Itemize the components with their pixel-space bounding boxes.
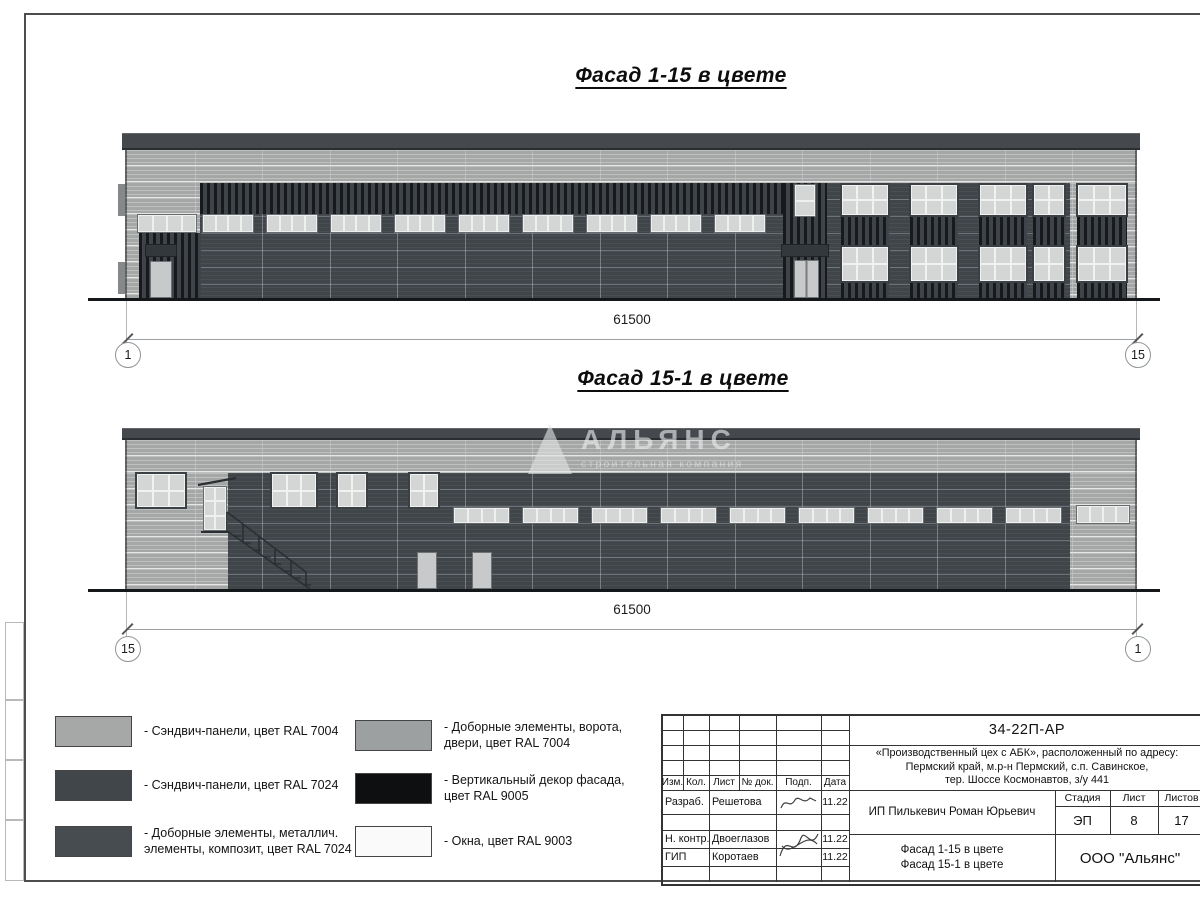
window-pane (1104, 507, 1115, 522)
entrance-door (150, 261, 172, 298)
tb-sheet-value: 8 (1110, 806, 1158, 834)
tb-stage-value: ЭП (1055, 806, 1110, 834)
window-pane (943, 186, 956, 199)
window-pane (154, 216, 167, 231)
window-pane (1117, 507, 1128, 522)
window-pane (1035, 201, 1048, 214)
window-pane (345, 216, 356, 231)
tb-sheets-label: Листов (1158, 790, 1200, 806)
tb-stage-label: Стадия (1055, 790, 1110, 806)
window-pane (927, 265, 940, 280)
window-pane (154, 475, 168, 490)
window-pane (858, 248, 871, 263)
tb-header-podp: Подп. (776, 775, 821, 790)
tb-project-line: тер. Шоссе Космонавтов, з/у 441 (945, 774, 1109, 788)
legend-label: - Доборные элементы, ворота, двери, цвет… (444, 720, 622, 751)
office-window-upper (840, 183, 890, 217)
window-pane (268, 216, 279, 231)
window-pane (1050, 265, 1063, 280)
window-pane (716, 216, 727, 231)
legend-label: - Вертикальный декор фасада, цвет RAL 90… (444, 773, 625, 804)
window-pane (183, 216, 196, 231)
tb-date: 11.22 (821, 848, 849, 866)
window-pane (469, 509, 481, 522)
window-pane (552, 509, 564, 522)
panel-joint (1072, 150, 1073, 298)
frame-border-top (24, 13, 1200, 15)
window-pane (138, 492, 152, 507)
window-pane (370, 216, 381, 231)
window-pane (1035, 265, 1048, 280)
ribbon-window (330, 214, 382, 233)
panel-joint (330, 440, 331, 590)
ribbon-window (798, 507, 855, 524)
window-pane (524, 509, 536, 522)
window-pane (425, 475, 437, 490)
frame-border-left (24, 13, 26, 882)
window-pane (927, 201, 940, 214)
window-pane (421, 216, 432, 231)
tb-sheets-value: 17 (1158, 806, 1200, 834)
signature-stroke (781, 798, 816, 808)
service-door (417, 552, 437, 589)
window-pane (858, 265, 871, 280)
window-pane (869, 509, 881, 522)
window-pane (927, 186, 940, 199)
tb-name-korotaev: Коротаев (709, 848, 776, 866)
window-pane (353, 475, 365, 490)
dimension-label: 61500 (613, 312, 651, 327)
window-pane (1079, 201, 1093, 214)
window-pane (858, 186, 871, 199)
window-pane (549, 216, 560, 231)
sandwich-panel-light-end-bay (1070, 473, 1137, 590)
window-pane (425, 492, 437, 507)
extension-line (1136, 592, 1137, 640)
window-pane (979, 509, 991, 522)
window-pane (339, 475, 351, 490)
dimension-line (127, 339, 1137, 340)
window-pane (883, 509, 895, 522)
legend-swatch-ral9003 (355, 826, 432, 857)
tb-sheet-label: Лист (1110, 790, 1158, 806)
legend-swatch-ral9005 (355, 773, 432, 804)
window-pane (626, 216, 637, 231)
window-pane (759, 509, 771, 522)
window-pane (306, 216, 317, 231)
window-pane (1012, 248, 1025, 263)
window-pane (332, 216, 343, 231)
window-pane (1095, 201, 1109, 214)
stair-steps (233, 536, 311, 585)
window-pane (1079, 265, 1093, 280)
tb-project-line: Пермский край, м.р-н Пермский, с.п. Сави… (906, 761, 1149, 775)
window-pane (601, 216, 612, 231)
window-pane (814, 509, 826, 522)
window-pane (588, 216, 599, 231)
window-pane (1111, 201, 1125, 214)
ribbon-window (522, 214, 574, 233)
wall-fin (118, 184, 125, 216)
tb-project-line: «Производственный цех с АБК», расположен… (876, 747, 1179, 761)
building-edge (125, 440, 127, 590)
window-pane (339, 492, 351, 507)
facade-bottom-title: Фасад 15-1 в цвете (577, 367, 788, 391)
entrance-door-double (794, 260, 819, 298)
window-pane (524, 216, 535, 231)
window-pane (293, 216, 304, 231)
panel-joint (1072, 440, 1073, 590)
window-pane (996, 248, 1009, 263)
service-door (472, 552, 492, 589)
window-pane (754, 216, 765, 231)
window-pane (1012, 265, 1025, 280)
signature-reshetova (779, 793, 819, 813)
facade-top-title: Фасад 1-15 в цвете (575, 64, 786, 88)
window-pane (652, 216, 663, 231)
window-pane (538, 509, 550, 522)
sandwich-panel-light-band (125, 440, 1137, 473)
vertical-decor-band (1033, 217, 1065, 245)
window-pane (496, 509, 508, 522)
axis-marker-15: 15 (115, 636, 141, 662)
ribbon-window (660, 507, 717, 524)
drawing-sheet: Фасад 1-15 в цвете Фасад 15-1 в цвете АЛ… (0, 0, 1200, 900)
ribbon-window (1076, 505, 1130, 524)
window-pane (858, 201, 871, 214)
window-pane (138, 475, 152, 490)
building-edge (125, 150, 127, 298)
window-pane (912, 186, 925, 199)
window-pane (874, 186, 887, 199)
ribbon-window (137, 214, 197, 233)
window-pane (943, 265, 956, 280)
window-pane (676, 509, 688, 522)
legend-swatch-ral7024 (55, 770, 132, 801)
window-pane (217, 216, 228, 231)
ribbon-window (714, 214, 766, 233)
vertical-decor-band (841, 217, 889, 245)
window-pane (434, 216, 445, 231)
window-pane (981, 186, 994, 199)
stair-stringer (227, 531, 310, 589)
window-pane (981, 265, 994, 280)
window-pane (460, 216, 471, 231)
tb-company: ООО "Альянс" (1055, 834, 1200, 882)
tb-name-dvoeglazov: Двоеглазов (709, 830, 776, 848)
window-pane (483, 509, 495, 522)
vertical-decor-band (200, 183, 783, 214)
legend-item: - Доборные элементы, металлич. элементы,… (55, 826, 352, 857)
window-pane (170, 492, 184, 507)
window-pane (772, 509, 784, 522)
building-edge (1135, 440, 1137, 590)
fire-escape-stairs (196, 472, 322, 592)
window-pane (473, 216, 484, 231)
vertical-decor-band (1033, 283, 1065, 298)
tb-header-ndok: № док. (739, 775, 776, 790)
window-pane (703, 509, 715, 522)
tb-project-description: «Производственный цех с АБК», расположен… (849, 745, 1200, 790)
window-pane (634, 509, 646, 522)
window-pane (455, 509, 467, 522)
office-window-lower (1076, 245, 1128, 283)
window-pane (996, 201, 1009, 214)
window-pane (910, 509, 922, 522)
tb-header-izm: Изм. (662, 775, 683, 790)
tb-sheet-title: Фасад 1-15 в цвете Фасад 15-1 в цвете (849, 834, 1055, 882)
vertical-decor-band (979, 283, 1027, 298)
window-pane (996, 265, 1009, 280)
dimension-label: 61500 (613, 602, 651, 617)
office-window (135, 472, 187, 509)
tb-date: 11.22 (821, 790, 849, 814)
vertical-decor-band (1077, 217, 1127, 245)
window-pane (1035, 186, 1048, 199)
ribbon-window (1005, 507, 1062, 524)
window-pane (943, 201, 956, 214)
window-pane (996, 186, 1009, 199)
window-pane (1111, 265, 1125, 280)
legend-swatch-ral7024-metal (55, 826, 132, 857)
window-pane (1035, 509, 1047, 522)
ribbon-window (458, 214, 510, 233)
stairwell-window (794, 184, 816, 217)
office-window (336, 472, 368, 509)
window-pane (613, 216, 624, 231)
parapet-band (122, 133, 1140, 150)
door-canopy-line (198, 478, 236, 485)
tb-role-nkontr: Н. контр. (662, 830, 709, 848)
office-window-lower (909, 245, 959, 283)
window-pane (874, 201, 887, 214)
railing-posts (227, 512, 306, 587)
window-pane (912, 265, 925, 280)
tb-role-gip: ГИП (662, 848, 709, 866)
window-pane (828, 509, 840, 522)
frame-margin-cell (5, 760, 24, 820)
office-window-lower (1032, 245, 1066, 283)
entrance-canopy (781, 244, 829, 257)
ribbon-window (591, 507, 648, 524)
tb-client: ИП Пилькевич Роман Юрьевич (849, 790, 1055, 834)
window-pane (396, 216, 407, 231)
ribbon-window (586, 214, 638, 233)
legend-label: - Сэндвич-панели, цвет RAL 7024 (144, 778, 338, 794)
frame-margin-cell (5, 820, 24, 881)
frame-margin-cell (5, 700, 24, 760)
legend-item: - Доборные элементы, ворота, двери, цвет… (355, 720, 622, 751)
signature-stroke (780, 834, 818, 856)
window-pane (981, 201, 994, 214)
window-pane (1095, 248, 1109, 263)
vertical-decor-band (979, 217, 1027, 245)
window-pane (1021, 509, 1033, 522)
legend-label: - Сэндвич-панели, цвет RAL 7004 (144, 724, 338, 740)
window-pane (357, 216, 368, 231)
window-pane (927, 248, 940, 263)
sandwich-panel-light-band (125, 150, 1137, 183)
vertical-decor-band (910, 217, 958, 245)
window-pane (1050, 248, 1063, 263)
window-pane (204, 216, 215, 231)
legend-swatch-ral7004-doors (355, 720, 432, 751)
ribbon-window (936, 507, 993, 524)
signature-korotaev (777, 826, 821, 864)
window-pane (1012, 201, 1025, 214)
axis-marker-15: 15 (1125, 342, 1151, 368)
ribbon-window (394, 214, 446, 233)
window-pane (841, 509, 853, 522)
tb-role-razrab: Разраб. (662, 790, 709, 814)
window-pane (938, 509, 950, 522)
window-pane (912, 248, 925, 263)
window-pane (1091, 507, 1102, 522)
window-pane (1095, 265, 1109, 280)
legend-item: - Сэндвич-панели, цвет RAL 7024 (55, 770, 338, 801)
legend-label: - Доборные элементы, металлич. элементы,… (144, 826, 352, 857)
window-pane (745, 509, 757, 522)
window-pane (843, 265, 856, 280)
office-window-lower (978, 245, 1028, 283)
window-pane (1048, 509, 1060, 522)
window-pane (796, 186, 814, 200)
window-pane (843, 248, 856, 263)
window-pane (952, 509, 964, 522)
axis-marker-1: 1 (115, 342, 141, 368)
window-pane (843, 201, 856, 214)
window-pane (281, 216, 292, 231)
panel-joint (397, 440, 398, 590)
legend-item: - Сэндвич-панели, цвет RAL 7004 (55, 716, 338, 747)
window-pane (741, 216, 752, 231)
window-pane (665, 216, 676, 231)
window-pane (154, 492, 168, 507)
window-pane (1079, 186, 1093, 199)
window-pane (943, 248, 956, 263)
tb-date: 11.22 (821, 830, 849, 848)
window-pane (690, 216, 701, 231)
ribbon-window (453, 507, 510, 524)
window-pane (966, 509, 978, 522)
ribbon-window (266, 214, 318, 233)
legend-item: - Окна, цвет RAL 9003 (355, 826, 572, 857)
window-pane (690, 509, 702, 522)
office-window-upper (978, 183, 1028, 217)
ribbon-window (650, 214, 702, 233)
window-pane (607, 509, 619, 522)
window-pane (242, 216, 253, 231)
window-pane (593, 509, 605, 522)
window-pane (1079, 248, 1093, 263)
wall-fin (118, 262, 125, 294)
window-pane (981, 248, 994, 263)
vertical-decor-band (841, 283, 889, 298)
window-pane (353, 492, 365, 507)
legend-swatch-ral7004 (55, 716, 132, 747)
window-pane (912, 201, 925, 214)
window-pane (796, 202, 814, 216)
window-pane (168, 216, 181, 231)
window-pane (1050, 186, 1063, 199)
ribbon-window (729, 507, 786, 524)
parapet-band (122, 428, 1140, 440)
ribbon-window (522, 507, 579, 524)
window-pane (411, 492, 423, 507)
extension-line (126, 592, 127, 640)
ribbon-window (867, 507, 924, 524)
window-pane (485, 216, 496, 231)
building-edge (1135, 150, 1137, 298)
dimension-line (127, 629, 1137, 630)
window-pane (1007, 509, 1019, 522)
vertical-decor-band (910, 283, 958, 298)
window-pane (1111, 186, 1125, 199)
window-pane (731, 509, 743, 522)
tb-name-reshetova: Решетова (709, 790, 776, 814)
window-pane (1035, 248, 1048, 263)
window-pane (843, 186, 856, 199)
window-pane (897, 509, 909, 522)
window-pane (662, 509, 674, 522)
tb-doc-number: 34-22П-АР (849, 715, 1200, 745)
window-pane (874, 248, 887, 263)
ground-line (88, 298, 1160, 301)
tb-header-kol: Кол. (683, 775, 709, 790)
vertical-decor-band (1077, 283, 1127, 298)
office-window-upper (909, 183, 959, 217)
window-pane (1012, 186, 1025, 199)
tb-sheet-title-line: Фасад 1-15 в цвете (901, 843, 1004, 858)
window-pane (800, 509, 812, 522)
window-pane (498, 216, 509, 231)
window-pane (411, 475, 423, 490)
legend-label: - Окна, цвет RAL 9003 (444, 834, 572, 850)
office-window (408, 472, 440, 509)
window-pane (229, 216, 240, 231)
window-pane (409, 216, 420, 231)
office-window-upper (1032, 183, 1066, 217)
window-pane (562, 216, 573, 231)
window-pane (139, 216, 152, 231)
window-pane (170, 475, 184, 490)
panel-joint (262, 150, 263, 298)
axis-marker-1: 1 (1125, 636, 1151, 662)
legend-item: - Вертикальный декор фасада, цвет RAL 90… (355, 773, 625, 804)
window-pane (537, 216, 548, 231)
frame-margin-cell (5, 622, 24, 700)
window-pane (565, 509, 577, 522)
tb-header-list: Лист (709, 775, 739, 790)
tb-header-data: Дата (821, 775, 849, 790)
window-pane (729, 216, 740, 231)
window-pane (1078, 507, 1089, 522)
window-pane (1111, 248, 1125, 263)
office-window-upper (1076, 183, 1128, 217)
window-pane (677, 216, 688, 231)
entrance-sign-plate (145, 244, 177, 257)
window-pane (621, 509, 633, 522)
window-pane (874, 265, 887, 280)
stair-railing (227, 512, 306, 572)
office-window-lower (840, 245, 890, 283)
ribbon-window (202, 214, 254, 233)
window-pane (1095, 186, 1109, 199)
window-pane (1050, 201, 1063, 214)
tb-sheet-title-line: Фасад 15-1 в цвете (901, 858, 1004, 873)
